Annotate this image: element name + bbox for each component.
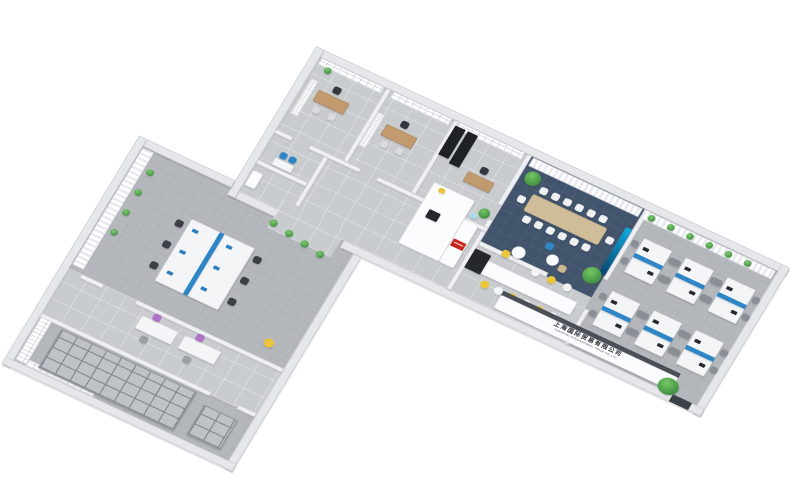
render-canvas: 上海国际贸易有限公司 SHANGHAI INTERNATIONAL TRADE … xyxy=(0,0,800,500)
floor-plan: 上海国际贸易有限公司 SHANGHAI INTERNATIONAL TRADE … xyxy=(14,12,778,500)
